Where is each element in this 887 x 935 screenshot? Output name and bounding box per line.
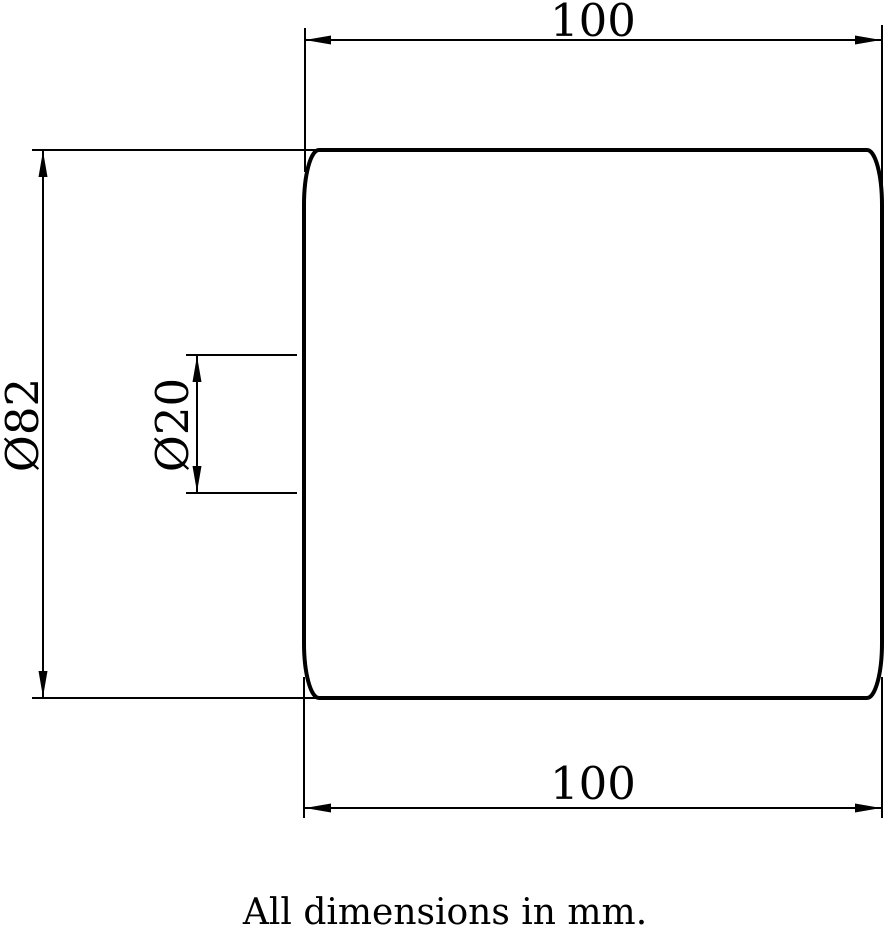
units-note: All dimensions in mm.	[242, 892, 647, 933]
dimension-label-bore-diameter: Ø20	[146, 378, 199, 472]
arrowhead-left	[305, 36, 331, 45]
arrowhead-right	[855, 36, 881, 45]
part-outline-group	[304, 150, 882, 698]
arrowhead-top	[39, 151, 48, 177]
dimension-label-bottom-width: 100	[550, 757, 636, 810]
technical-drawing: 100 Ø82 Ø20 100	[0, 0, 887, 935]
dimension-bore-diameter: Ø20	[146, 355, 297, 493]
dimension-label-top-width: 100	[550, 0, 636, 47]
part-outline	[304, 150, 882, 698]
dimension-top-width: 100	[305, 0, 882, 205]
arrowhead-right	[855, 804, 881, 813]
arrowhead-bottom	[39, 671, 48, 697]
technical-drawing-page: 100 Ø82 Ø20 100	[0, 0, 887, 935]
dimension-label-outer-diameter: Ø82	[0, 378, 49, 472]
arrowhead-left	[305, 804, 331, 813]
